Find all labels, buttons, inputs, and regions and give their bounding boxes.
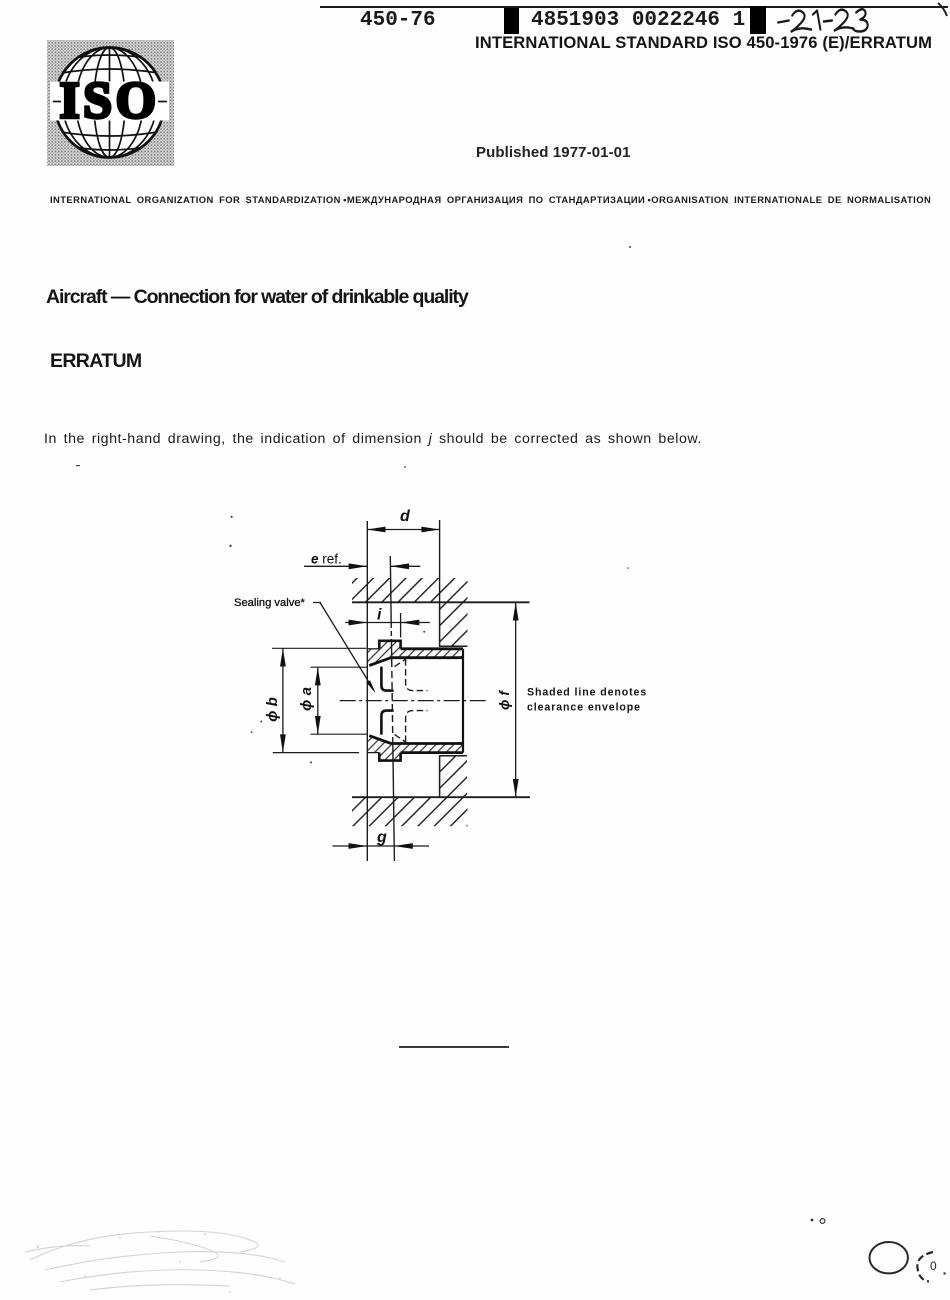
svg-text:clearance envelope: clearance envelope — [527, 702, 641, 714]
svg-text:g: g — [376, 829, 387, 846]
svg-text:Shaded line denotes: Shaded line denotes — [527, 687, 647, 699]
svg-text:d: d — [400, 508, 411, 525]
svg-text:Sealing valve*: Sealing valve* — [234, 597, 306, 609]
svg-text:ϕ f: ϕ f — [497, 690, 512, 710]
svg-text:0: 0 — [930, 1259, 937, 1273]
svg-text:i: i — [377, 607, 382, 624]
svg-text:ISO: ISO — [59, 73, 159, 130]
svg-text:e ref.: e ref. — [311, 552, 342, 567]
svg-text:ϕ b: ϕ b — [264, 697, 281, 722]
svg-text:ϕ a: ϕ a — [298, 687, 315, 711]
